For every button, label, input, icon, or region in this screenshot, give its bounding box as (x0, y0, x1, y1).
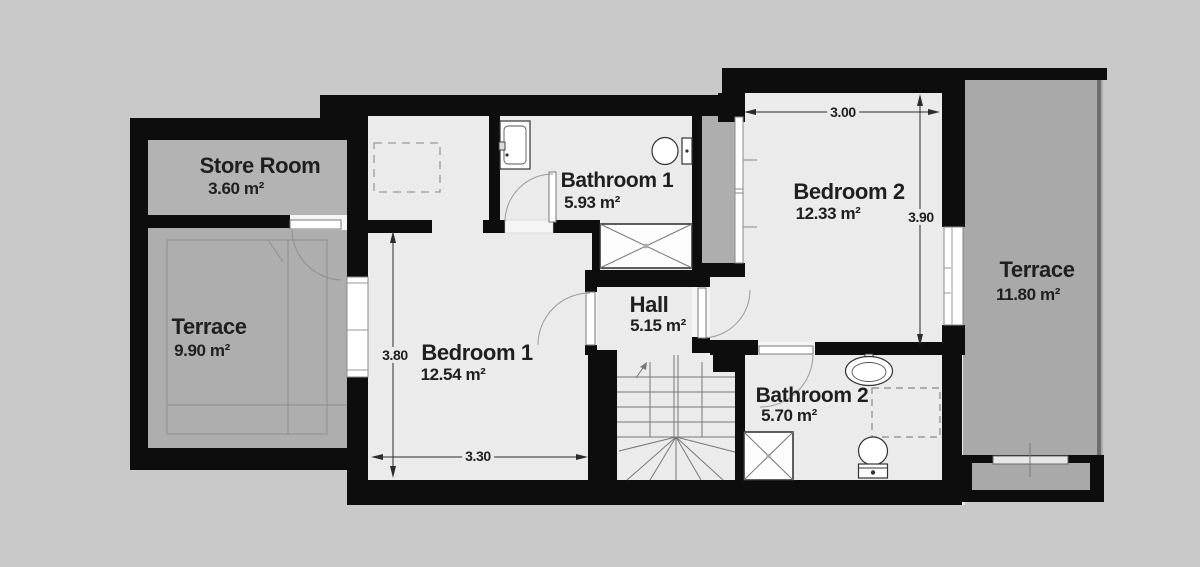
bedroom2-terrace-door (944, 227, 963, 325)
room-area-bathroom-1: 5.93 m² (564, 193, 620, 213)
room-label-bathroom-2: Bathroom 2 (756, 384, 869, 408)
room-label-terrace-left: Terrace (171, 314, 246, 340)
shower-1-icon (600, 224, 692, 268)
room-label-bathroom-1: Bathroom 1 (561, 169, 674, 193)
toilet-2-icon (859, 437, 888, 478)
toilet-1-icon (652, 138, 692, 165)
room-area-bedroom-1: 12.54 m² (421, 365, 486, 385)
sink-1-icon (499, 121, 530, 169)
room-label-bedroom-1: Bedroom 1 (421, 340, 532, 366)
shower-2-icon (744, 432, 793, 480)
room-label-hall: Hall (630, 292, 669, 318)
terrace-right-railing-line (1097, 78, 1101, 458)
dimension-label-bedroom1-width: 3.30 (462, 448, 494, 464)
room-label-bedroom-2: Bedroom 2 (793, 179, 904, 205)
room-area-store-room: 3.60 m² (208, 179, 264, 199)
terrace-steps-floor (972, 463, 1090, 490)
floor-plan: Store Room 3.60 m² Terrace 9.90 m² Bedro… (0, 0, 1200, 567)
room-area-terrace-right: 11.80 m² (996, 285, 1060, 305)
room-area-hall: 5.15 m² (630, 316, 686, 336)
dimension-label-bedroom1-height: 3.80 (379, 347, 411, 363)
room-area-terrace-left: 9.90 m² (174, 341, 230, 361)
floor-plan-drawing (0, 0, 1200, 567)
room-area-bedroom-2: 12.33 m² (796, 204, 861, 224)
bedroom1-window (347, 277, 368, 377)
room-label-terrace-right: Terrace (999, 257, 1074, 283)
room-area-bathroom-2: 5.70 m² (761, 406, 817, 426)
dimension-label-bedroom2-height: 3.90 (905, 209, 937, 225)
wardrobe (702, 115, 735, 263)
room-label-store-room: Store Room (200, 153, 321, 179)
dimension-label-bedroom2-width: 3.00 (827, 104, 859, 120)
